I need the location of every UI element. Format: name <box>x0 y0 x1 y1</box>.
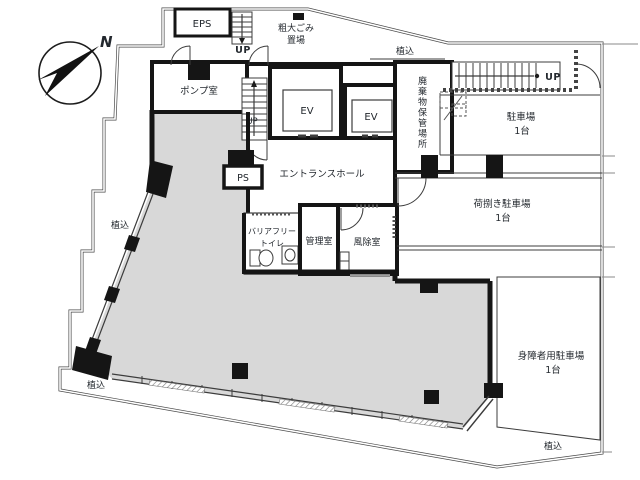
elevator-1: EV <box>270 67 341 138</box>
bulky-garbage-label-2: 置場 <box>287 34 305 46</box>
stair-right-up-label: UP <box>545 72 561 83</box>
windbreak-room-label: 風除室 <box>353 236 380 248</box>
entrance-hall-label: エントランスホール <box>279 169 365 180</box>
corridor-door <box>398 178 426 206</box>
planting-top-label: 植込 <box>396 45 414 57</box>
bulky-garbage-label-1: 粗大ごみ <box>278 22 314 34</box>
toilet-bowl-icon <box>259 250 273 266</box>
parking-accessible: 身障者用駐車場 1台 <box>497 277 600 440</box>
parking-loading-label: 荷捌き駐車場 <box>473 198 531 210</box>
parking-loading-capacity: 1台 <box>495 212 511 224</box>
room-accessible-toilet: バリアフリー トイレ <box>244 213 300 274</box>
column <box>232 363 248 379</box>
room-pipe-shaft: PS <box>224 150 262 188</box>
area-bulky-garbage: 粗大ごみ 置場 <box>278 13 314 46</box>
column <box>486 155 503 178</box>
manager-room-label: 管理室 <box>305 235 332 247</box>
parking-general-capacity: 1台 <box>514 125 530 137</box>
stair-top <box>232 12 252 44</box>
elevator-2-label: EV <box>364 112 377 123</box>
column <box>421 155 438 178</box>
sink-bowl-icon <box>285 249 295 261</box>
gate-door <box>576 64 600 88</box>
column <box>188 60 210 80</box>
stair-top-up-label: UP <box>235 45 251 56</box>
accessible-toilet-label-1: バリアフリー <box>248 227 296 236</box>
planting-bottom-left-label: 植込 <box>87 379 105 391</box>
elevator-2: EV <box>345 85 397 138</box>
room-pump: ポンプ室 <box>152 60 247 112</box>
north-arrow-icon <box>38 46 99 96</box>
parking-loading: 荷捌き駐車場 1台 <box>473 198 531 224</box>
floor-plan-drawing: N ポンプ室 EPS UP 粗大ごみ 置場 UP <box>0 0 640 480</box>
planting-left-label: 植込 <box>111 219 129 231</box>
elevator-1-label: EV <box>300 106 313 117</box>
room-eps: EPS <box>175 9 230 36</box>
floor-plan-page: N ポンプ室 EPS UP 粗大ごみ 置場 UP <box>0 0 640 480</box>
waste-storage-label: 廃棄物保管場所 <box>416 75 427 150</box>
parking-general-label: 駐車場 <box>507 111 536 123</box>
pipe-shaft-label: PS <box>237 173 249 184</box>
compass: N <box>38 33 113 104</box>
column <box>484 383 503 398</box>
accessible-toilet-label-2: トイレ <box>260 239 284 248</box>
eps-label: EPS <box>193 19 212 30</box>
room-manager: 管理室 <box>300 205 338 274</box>
room-windbreak: 風除室 <box>338 205 397 276</box>
column <box>420 279 438 293</box>
parking-accessible-label: 身障者用駐車場 <box>518 350 585 362</box>
column <box>293 13 304 20</box>
north-label: N <box>100 33 113 51</box>
parking-accessible-capacity: 1台 <box>545 364 561 376</box>
planting-bottom-right-label: 植込 <box>544 440 562 452</box>
parking-general: 駐車場 1台 <box>507 111 536 137</box>
extension-lines <box>602 44 638 452</box>
pump-room-label: ポンプ室 <box>180 85 218 97</box>
stair-right <box>452 62 560 90</box>
column <box>424 390 439 404</box>
